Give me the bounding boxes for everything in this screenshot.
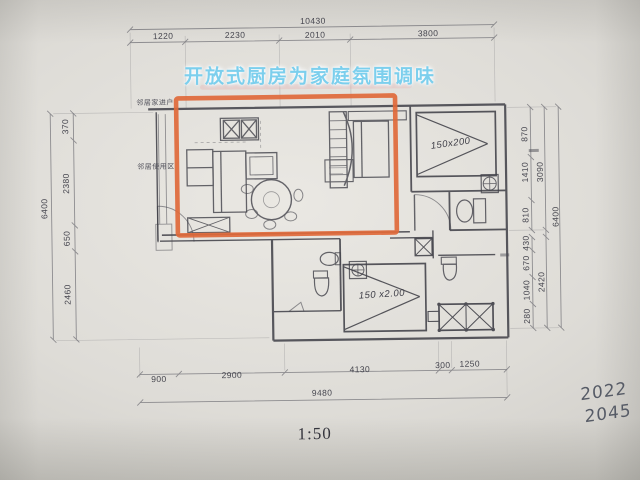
dim-left-seg: 370 <box>61 119 70 135</box>
dining-table-icon <box>241 179 303 229</box>
dim-top-total: 10430 <box>300 17 326 26</box>
wardrobe-icon <box>428 302 495 332</box>
floorplan-photo: 10430 1220 2230 2010 3800 900 2900 4130 … <box>0 0 640 480</box>
dim-bottom-seg: 300 <box>435 361 451 370</box>
dim-right-seg: 430 <box>522 235 531 251</box>
dim-right-group: 2420 <box>537 272 546 293</box>
dim-right-seg: 810 <box>521 207 530 223</box>
dim-right-seg: 670 <box>522 255 531 271</box>
kitchen-highlight-box <box>176 95 397 235</box>
caption-text: 开放式厨房为家庭氛围调味 <box>184 62 436 89</box>
dim-right-seg: 280 <box>523 308 532 324</box>
kitchen-units <box>186 111 408 233</box>
dim-left-seg: 650 <box>63 231 72 247</box>
dim-right-total: 6400 <box>551 206 560 227</box>
dim-right-seg: 1040 <box>522 280 531 301</box>
dim-bottom-seg: 2900 <box>222 371 243 380</box>
neighbor-zone-label: 邻居使用区 <box>137 164 175 172</box>
dim-right-seg: 870 <box>520 126 529 142</box>
dim-bottom-seg: 900 <box>151 375 167 384</box>
dim-right-group: 3090 <box>536 162 545 183</box>
dim-bottom-seg: 4130 <box>349 365 370 374</box>
dim-top-seg: 1220 <box>153 32 174 41</box>
dim-right-seg: 1410 <box>521 162 530 183</box>
dim-left-seg: 2380 <box>62 173 71 194</box>
dim-bottom-seg: 1250 <box>459 360 480 369</box>
neighbor-entry-label: 邻居家进户 <box>136 100 174 108</box>
scale-label: 1:50 <box>297 424 332 444</box>
dim-top-seg: 3800 <box>418 29 439 38</box>
dim-bottom-total: 9480 <box>312 389 333 398</box>
dim-top-seg: 2010 <box>305 31 326 40</box>
shaft-icon <box>415 238 432 255</box>
dim-left-total: 6400 <box>40 199 49 220</box>
dim-top-seg: 2230 <box>225 31 246 40</box>
dim-left-seg: 2460 <box>63 284 72 305</box>
